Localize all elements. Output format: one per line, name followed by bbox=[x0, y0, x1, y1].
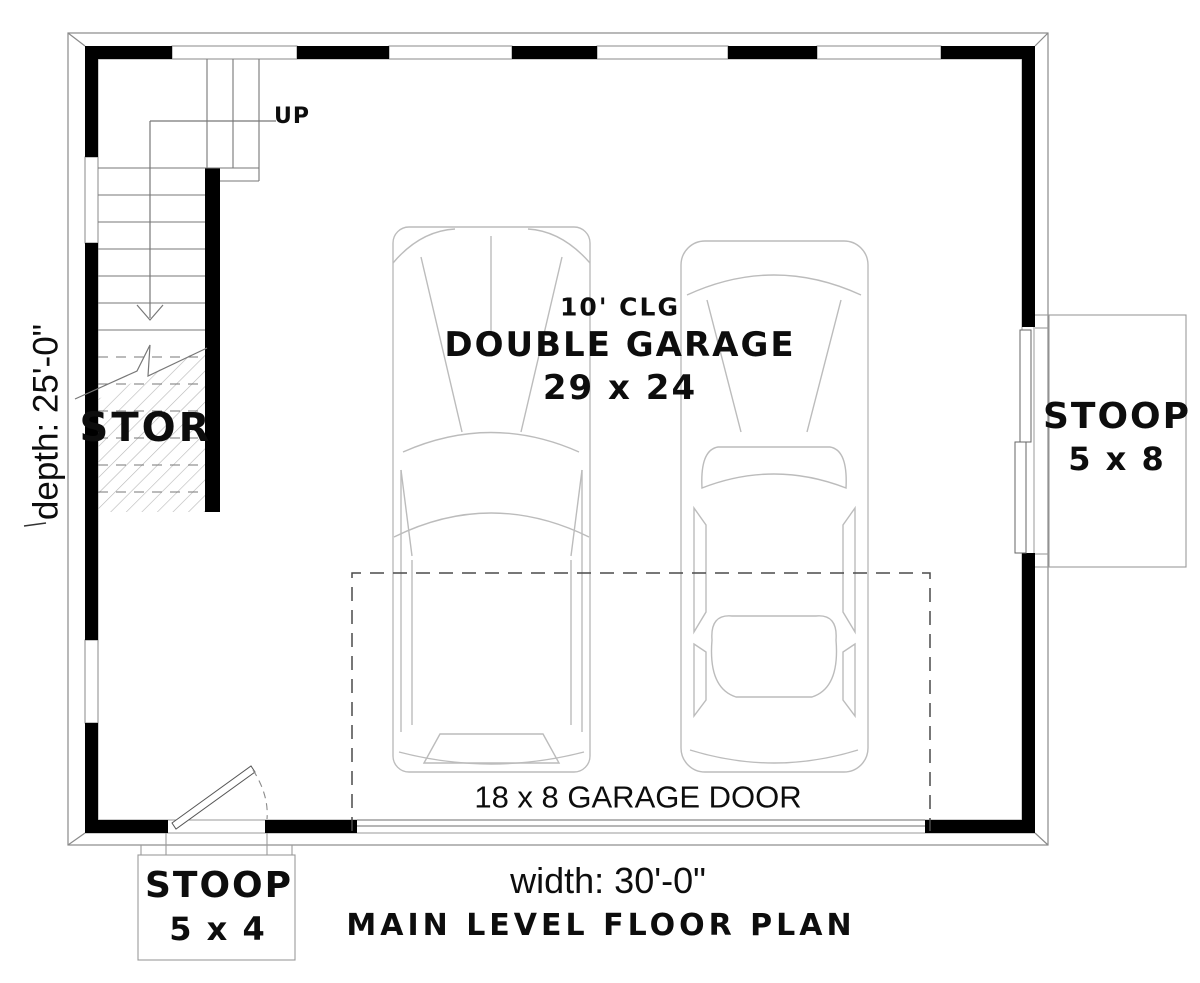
stair-up-label: UP bbox=[274, 106, 310, 128]
ceiling-height-label: 10' CLG bbox=[560, 295, 680, 320]
window-left-1 bbox=[85, 157, 98, 243]
plan-title: MAIN LEVEL FLOOR PLAN bbox=[346, 911, 855, 941]
garage-door bbox=[357, 820, 925, 826]
garage-door-label: 18 x 8 GARAGE DOOR bbox=[474, 782, 801, 813]
right-side-door bbox=[1015, 330, 1031, 553]
stoop-right-size: 5 x 8 bbox=[1068, 443, 1165, 475]
stoop-bottom-size: 5 x 4 bbox=[169, 913, 266, 945]
stoop-right-label: STOOP bbox=[1043, 399, 1191, 435]
dimension-tick bbox=[24, 523, 46, 526]
exterior-walls bbox=[85, 46, 1035, 833]
window-top-4 bbox=[817, 46, 941, 59]
window-top-1 bbox=[172, 46, 297, 59]
interior-wall bbox=[205, 168, 220, 512]
window-left-2 bbox=[85, 640, 98, 723]
depth-dimension-label: depth: 25'-0" bbox=[29, 324, 64, 520]
wall-face-lines bbox=[85, 59, 1035, 833]
floor-plan-sheet: UP STOR 10' CLG DOUBLE GARAGE 29 x 24 18… bbox=[0, 0, 1200, 983]
window-top-2 bbox=[389, 46, 512, 59]
room-name-label: DOUBLE GARAGE bbox=[444, 328, 795, 362]
right-car bbox=[681, 241, 868, 772]
floor-plan-drawing bbox=[0, 0, 1200, 983]
stoop-bottom-label: STOOP bbox=[145, 868, 293, 904]
window-top-3 bbox=[597, 46, 728, 59]
width-dimension-label: width: 30'-0" bbox=[510, 863, 706, 899]
storage-label: STOR bbox=[80, 408, 213, 448]
room-size-label: 29 x 24 bbox=[543, 371, 697, 405]
